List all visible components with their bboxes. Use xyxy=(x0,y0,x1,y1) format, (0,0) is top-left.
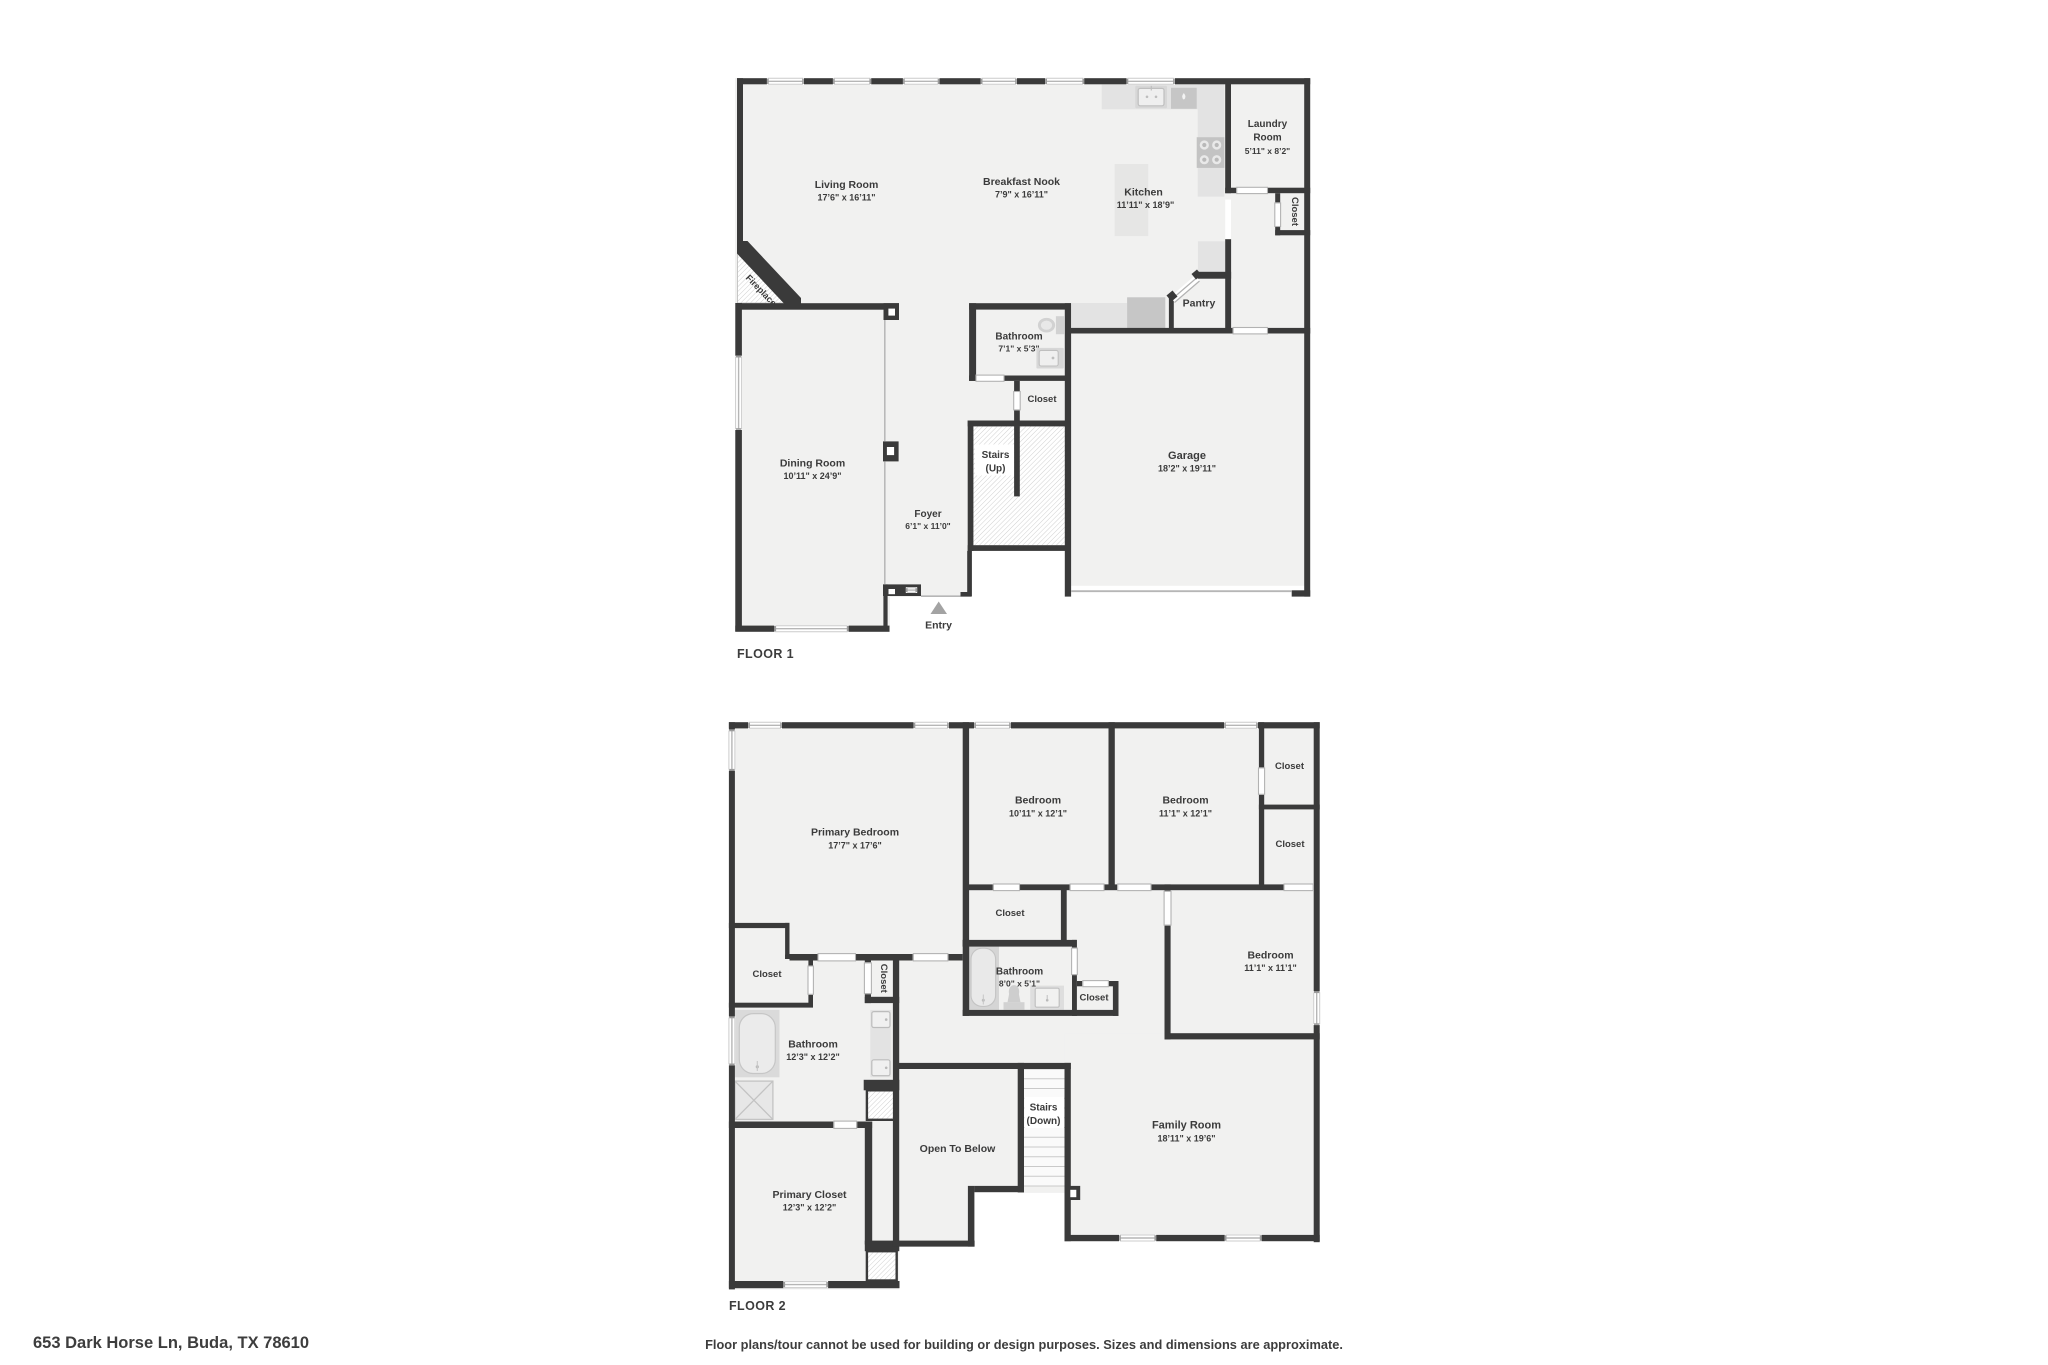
svg-text:Closet: Closet xyxy=(995,908,1025,919)
svg-text:Bathroom: Bathroom xyxy=(996,967,1043,978)
svg-text:Bedroom: Bedroom xyxy=(1247,950,1293,962)
svg-text:Open To Below: Open To Below xyxy=(920,1143,996,1155)
svg-text:Bedroom: Bedroom xyxy=(1015,795,1061,807)
svg-text:10’11" x 12’1": 10’11" x 12’1" xyxy=(1009,809,1067,819)
svg-text:Room: Room xyxy=(1253,133,1281,144)
svg-text:7’1" x 5’3": 7’1" x 5’3" xyxy=(998,344,1039,354)
svg-text:Floor plans/tour cannot be use: Floor plans/tour cannot be used for buil… xyxy=(705,1337,1343,1352)
svg-text:Entry: Entry xyxy=(925,620,952,632)
svg-text:Closet: Closet xyxy=(1275,839,1305,850)
svg-text:Bathroom: Bathroom xyxy=(995,332,1042,343)
svg-text:Garage: Garage xyxy=(1168,450,1206,462)
svg-text:(Down): (Down) xyxy=(1027,1116,1061,1127)
svg-text:Living Room: Living Room xyxy=(815,179,879,191)
svg-text:FLOOR 1: FLOOR 1 xyxy=(737,647,794,661)
svg-text:Pantry: Pantry xyxy=(1183,298,1216,310)
svg-text:7’9" x 16’11": 7’9" x 16’11" xyxy=(995,190,1048,200)
svg-text:Closet: Closet xyxy=(752,969,782,980)
svg-text:5’11" x 8’2": 5’11" x 8’2" xyxy=(1245,146,1290,156)
svg-text:Breakfast Nook: Breakfast Nook xyxy=(983,176,1060,188)
svg-text:FLOOR 2: FLOOR 2 xyxy=(729,1299,786,1313)
svg-text:Laundry: Laundry xyxy=(1248,119,1288,130)
svg-text:Primary Closet: Primary Closet xyxy=(772,1189,847,1201)
svg-text:Closet: Closet xyxy=(878,964,889,994)
svg-text:6’1" x 11’0": 6’1" x 11’0" xyxy=(905,521,950,531)
svg-text:Foyer: Foyer xyxy=(914,509,941,520)
svg-text:Primary Bedroom: Primary Bedroom xyxy=(811,827,899,839)
svg-text:(Up): (Up) xyxy=(986,464,1006,475)
svg-text:11’11" x 18’9": 11’11" x 18’9" xyxy=(1117,200,1175,210)
svg-text:Bedroom: Bedroom xyxy=(1162,795,1208,807)
svg-text:Closet: Closet xyxy=(1079,993,1109,1004)
svg-text:11’1" x 12’1": 11’1" x 12’1" xyxy=(1159,809,1212,819)
svg-text:17’7" x 17’6": 17’7" x 17’6" xyxy=(828,841,882,851)
svg-text:Kitchen: Kitchen xyxy=(1124,186,1163,198)
svg-text:Family Room: Family Room xyxy=(1152,1120,1221,1132)
svg-text:12’3" x 12’2": 12’3" x 12’2" xyxy=(783,1203,837,1213)
svg-text:Closet: Closet xyxy=(1027,394,1057,405)
svg-text:Stairs: Stairs xyxy=(1030,1103,1058,1114)
svg-text:18’11" x 19’6": 18’11" x 19’6" xyxy=(1157,1134,1215,1144)
svg-text:11’1" x 11’1": 11’1" x 11’1" xyxy=(1244,963,1297,973)
svg-text:8’0" x 5’1": 8’0" x 5’1" xyxy=(999,979,1040,989)
svg-text:17’6" x 16’11": 17’6" x 16’11" xyxy=(817,193,875,203)
svg-text:653 Dark Horse Ln, Buda, TX 78: 653 Dark Horse Ln, Buda, TX 78610 xyxy=(33,1334,309,1352)
svg-text:12’3" x 12’2": 12’3" x 12’2" xyxy=(786,1052,840,1062)
svg-text:Closet: Closet xyxy=(1289,197,1300,227)
svg-text:Dining Room: Dining Room xyxy=(780,458,845,470)
svg-text:Stairs: Stairs xyxy=(982,450,1010,461)
svg-text:10’11" x 24’9": 10’11" x 24’9" xyxy=(783,471,841,481)
svg-text:18’2" x 19’11": 18’2" x 19’11" xyxy=(1158,464,1216,474)
svg-text:Bathroom: Bathroom xyxy=(788,1039,838,1051)
svg-text:Closet: Closet xyxy=(1275,761,1305,772)
